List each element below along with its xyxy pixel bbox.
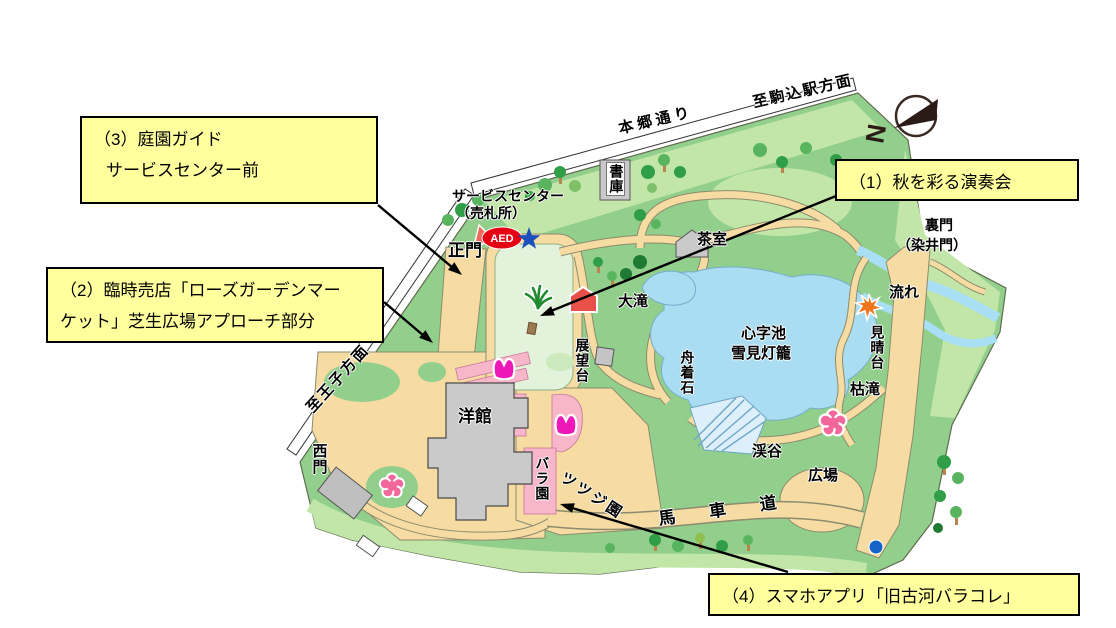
- garden-map-page: AED: [0, 0, 1116, 628]
- tree-icon: [605, 543, 615, 553]
- tree-icon: [649, 534, 661, 546]
- tree-icon: [933, 523, 943, 533]
- callout-3-line-1: （3）庭園ガイド: [94, 124, 364, 155]
- label-otaki: 大滝: [618, 294, 648, 311]
- callout-2-line-2: ケット」芝生広場アプローチ部分: [60, 306, 370, 337]
- tree-icon: [442, 214, 454, 226]
- compass: [894, 96, 938, 136]
- tree-icon: [593, 257, 603, 267]
- tree-icon: [695, 533, 705, 543]
- tree-icon: [934, 490, 946, 502]
- label-karetaki: 枯滝: [850, 382, 880, 399]
- label-keikoku: 渓谷: [752, 444, 782, 461]
- label-tenbodai: 展望台: [574, 338, 589, 383]
- label-nagare: 流れ: [889, 285, 919, 302]
- tree-icon: [633, 255, 647, 269]
- tree-icon: [937, 455, 951, 469]
- label-hiroba: 広場: [808, 468, 838, 485]
- aed-label: AED: [490, 233, 513, 245]
- tree-icon: [753, 143, 767, 157]
- small-structure: [527, 322, 537, 334]
- tree-icon: [952, 472, 964, 484]
- label-main-gate: 正門: [448, 242, 482, 261]
- label-yukimidoro: 雪見灯籠: [731, 346, 791, 363]
- label-shoko: 書庫: [606, 162, 625, 196]
- callout-3-line-2: サービスセンター前: [94, 155, 364, 186]
- label-miharashidai: 見晴台: [869, 325, 884, 370]
- tree-icon: [800, 142, 812, 154]
- label-chashitsu: 茶室: [697, 232, 727, 249]
- tree-icon: [607, 271, 617, 281]
- callout-3-garden-guide: （3）庭園ガイド サービスセンター前: [80, 116, 378, 204]
- tree-icon: [651, 219, 661, 229]
- tree-icon: [674, 166, 686, 178]
- label-rear-gate: 裏門: [925, 218, 953, 233]
- tree-icon: [554, 166, 566, 178]
- label-baraen: バラ園: [534, 456, 549, 501]
- callout-1-autumn-concert: （1）秋を彩る演奏会: [835, 159, 1079, 201]
- label-shinjiike: 心字池: [741, 326, 786, 343]
- lawn-oval: [546, 353, 574, 371]
- callout-2-rose-garden-market: （2）臨時売店「ローズガーデンマー ケット」芝生広場アプローチ部分: [46, 267, 384, 343]
- label-somei-gate: （染井門）: [897, 238, 967, 253]
- callout-2-line-1: （2）臨時売店「ローズガーデンマー: [60, 275, 370, 306]
- tree-icon: [776, 156, 788, 168]
- tree-icon: [743, 535, 753, 545]
- label-funatsukiishi: 舟着石: [679, 350, 694, 395]
- tree-icon: [569, 180, 581, 192]
- tree-icon: [950, 506, 962, 518]
- tree-icon: [641, 165, 655, 179]
- tree-icon: [658, 154, 670, 166]
- tenbodai-building: [595, 347, 614, 366]
- callout-1-line-1: （1）秋を彩る演奏会: [849, 167, 1065, 198]
- tree-icon: [634, 209, 646, 221]
- blue-dot-icon: [869, 540, 883, 554]
- tree-icon: [647, 183, 657, 193]
- label-service-center: サービスセンター: [452, 189, 564, 204]
- label-ticket-office: （売札所）: [456, 206, 526, 221]
- label-yokan: 洋館: [458, 408, 492, 427]
- callout-4-smartphone-app: （4）スマホアプリ「旧古河バラコレ」: [708, 573, 1080, 616]
- label-west-gate: 西門: [310, 443, 327, 475]
- callout-4-line-1: （4）スマホアプリ「旧古河バラコレ」: [722, 581, 1066, 612]
